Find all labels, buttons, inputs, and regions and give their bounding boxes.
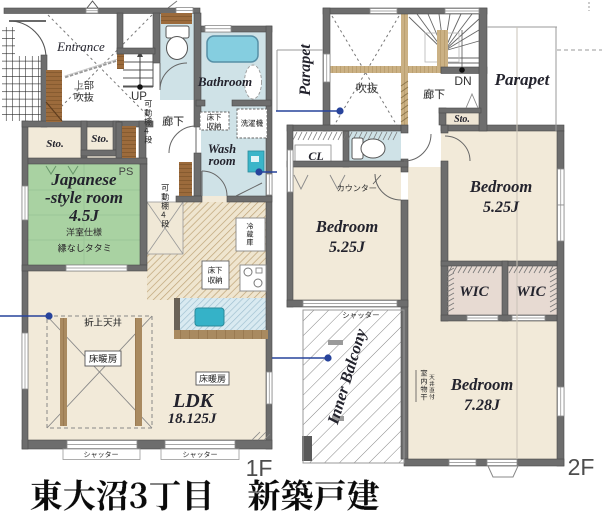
svg-text:Bedroom: Bedroom [469, 177, 533, 196]
svg-text:Bathroom: Bathroom [197, 74, 252, 89]
svg-text:-style room: -style room [45, 188, 123, 207]
svg-text:5.25J: 5.25J [483, 199, 520, 216]
svg-text:7.28J: 7.28J [464, 397, 501, 414]
svg-text:Sto.: Sto. [46, 138, 63, 150]
svg-text:Parapet: Parapet [494, 70, 551, 89]
svg-text:Bedroom: Bedroom [450, 375, 514, 394]
svg-text:4.5J: 4.5J [68, 206, 99, 225]
svg-text:WIC: WIC [459, 284, 489, 300]
svg-text:5.25J: 5.25J [329, 239, 366, 256]
svg-text:Entrance: Entrance [56, 39, 105, 54]
svg-text:LDK: LDK [172, 390, 215, 412]
svg-text:room: room [208, 154, 235, 168]
svg-text:Parapet: Parapet [297, 44, 314, 97]
svg-text:2F: 2F [568, 454, 595, 480]
svg-text:Sto.: Sto. [454, 114, 470, 125]
svg-text:1F: 1F [246, 455, 273, 481]
svg-text:CL: CL [308, 149, 323, 163]
svg-text:PS: PS [119, 166, 134, 178]
svg-text:Sto.: Sto. [91, 133, 108, 145]
svg-text:Bedroom: Bedroom [315, 217, 379, 236]
svg-text:18.125J: 18.125J [168, 411, 217, 427]
svg-text:Japanese: Japanese [50, 170, 117, 189]
svg-text:UP: UP [131, 91, 147, 103]
svg-text:WIC: WIC [516, 284, 546, 300]
svg-text:DN: DN [454, 74, 471, 88]
